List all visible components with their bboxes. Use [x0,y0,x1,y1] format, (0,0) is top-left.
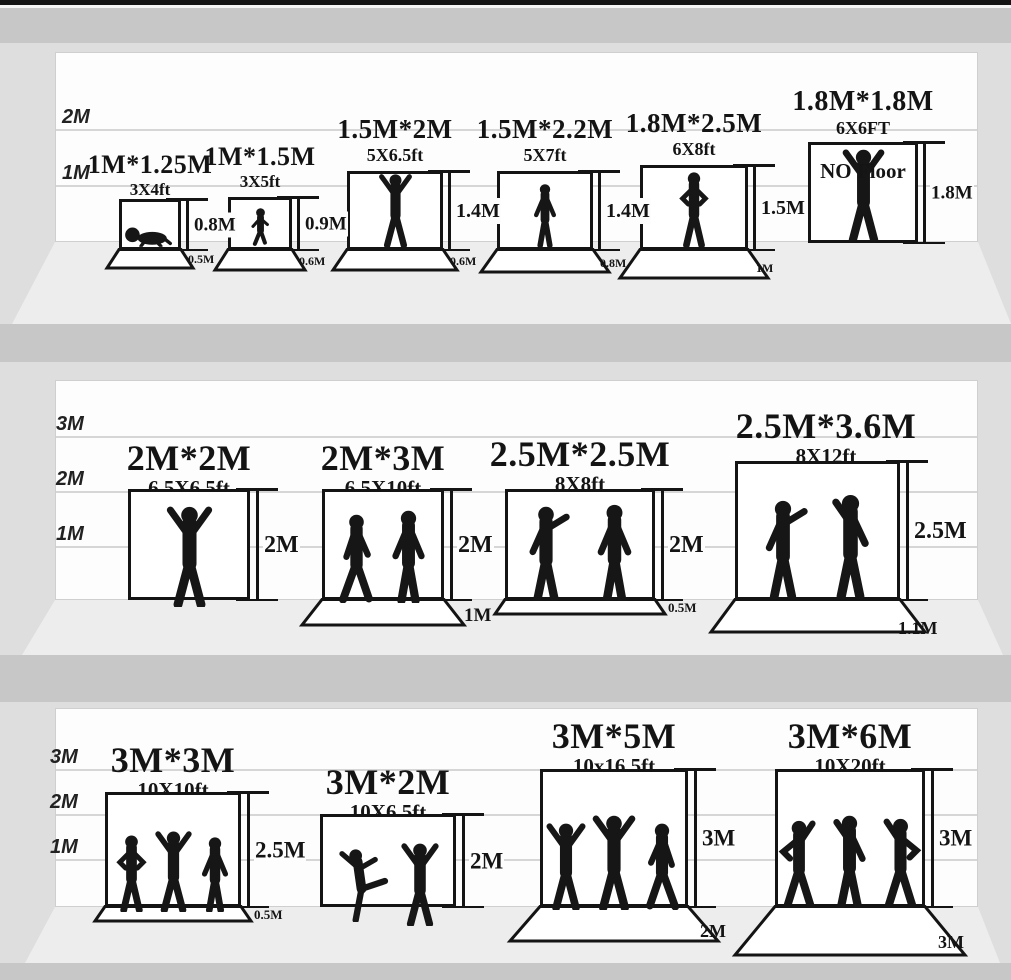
backdrop-size-title: 2.5M*2.5M [470,436,690,472]
no-floor-note: NO Floor [811,159,915,184]
singer-with-mic-icon [774,818,824,908]
person-standing-icon [196,836,234,912]
backdrop-floor-mat [709,598,927,634]
dancer-arms-up-icon [544,822,588,910]
shelf1-divider-band [0,324,1011,362]
floor-depth-label: 0.6M [299,255,325,267]
scale-label: 3M [56,414,84,434]
height-dimension-label: 2.5M [254,835,306,864]
backdrop-frame [128,489,250,600]
backdrop-frame [505,489,655,600]
man-arms-raised-icon [164,505,215,607]
man-pointing-icon [758,499,808,599]
boy-standing-icon [529,183,561,247]
person-hands-on-hips-icon [112,834,151,912]
floor-depth-label: 0.5M [254,908,283,921]
height-dimension-label: 0.9M [304,211,348,236]
floor-depth-label: 2M [700,922,726,940]
floor-depth-label: 0.8M [600,257,626,269]
backdrop-floor-mat [213,248,307,272]
backdrop-frame [105,792,241,907]
backdrop-frame [640,165,748,250]
backdrop-frame: NO Floor [808,142,918,243]
backdrop-size-title: 3M*6M [740,718,960,754]
height-dimension-label: 2M [469,846,504,875]
man-standing-icon [385,509,432,603]
man-hands-on-hips-icon [675,171,713,247]
performer-arm-up-icon [826,814,873,908]
woman-arms-raised-icon [377,173,414,247]
backdrop-frame [735,461,900,600]
scale-label: 1M [50,837,78,857]
height-dimension-label: 1.5M [760,195,806,221]
floor-depth-label: 3M [938,933,964,951]
backdrop-size-subtitle: 6X8ft [594,140,794,158]
person-waving-icon [153,830,194,912]
backdrop-size-title: 3M*3M [73,742,273,778]
height-dimension-label: 2.5M [913,516,968,546]
floor-depth-label: 1M [756,262,773,274]
backdrop-floor-mat [331,248,459,272]
floor-depth-label: 0.5M [668,601,697,614]
backdrop-size-title: 3M*5M [504,718,724,754]
scale-label: 1M [56,524,84,544]
backdrop-size-title: 3M*2M [288,764,488,800]
backdrop-floor-mat [618,248,770,280]
man-gesturing-icon [522,505,570,601]
height-dimension-label: 1.4M [455,198,501,224]
backdrop-frame [320,814,456,907]
floor-depth-label: 1M [464,606,491,625]
height-dimension-label: 3M [701,824,736,853]
backdrop-frame [540,769,688,907]
floor-depth-label: 0.6M [450,255,476,267]
backdrop-size-subtitle: 6X6FT [763,119,963,137]
floor-depth-label: 1.1M [898,619,938,637]
backdrop-size-subtitle: 3X5ft [170,173,350,190]
height-dimension-label: 1.4M [605,198,651,224]
sitting-toddler-icon [248,207,273,247]
height-dimension-label: 2M [263,530,300,560]
bottom-gray-band [0,963,1011,980]
backdrop-size-title: 2.5M*3.6M [716,408,936,444]
backdrop-floor-mat [300,598,466,627]
dancer-leaning-icon [640,822,684,910]
height-dimension-label: 1.8M [930,180,974,205]
backdrop-frame [775,769,925,907]
scale-label: 2M [62,107,90,127]
crawling-baby-icon [123,221,178,247]
backdrop-floor-mat [508,905,720,943]
backdrop-frame [497,171,593,250]
height-dimension-label: 0.8M [193,212,237,237]
man-facing-icon [590,503,639,601]
backdrop-frame [322,489,444,600]
backdrop-size-title: 1.8M*1.8M [763,88,963,116]
backdrop-size-title: 2M*2M [89,440,289,476]
dancer-arms-up-icon [399,842,441,926]
backdrop-floor-mat [479,248,611,274]
shelf2-divider-band [0,655,1011,702]
height-dimension-label: 3M [938,824,973,853]
singer-with-mic-icon [875,816,926,908]
backdrop-frame [347,171,443,250]
man-on-phone-icon [824,493,877,599]
dancer-arms-up-icon [590,814,638,910]
backdrop-frame [119,199,181,250]
man-walking-icon [334,513,379,603]
scale-label: 2M [56,469,84,489]
backdrop-frame [228,197,292,250]
backdrop-floor-mat [105,248,195,270]
backdrop-floor-mat [733,905,967,957]
backdrop-size-chart: 2M 1M 1M*1.25M 3X4ft 0.8M 0.5M 1M*1.5M 3… [0,0,1011,980]
floor-depth-label: 0.5M [188,253,214,265]
backdrop-size-title: 2M*3M [283,440,483,476]
height-dimension-label: 2M [457,530,494,560]
top-gray-band [0,8,1011,43]
dancer-kicking-icon [336,844,389,922]
height-dimension-label: 2M [668,530,705,560]
